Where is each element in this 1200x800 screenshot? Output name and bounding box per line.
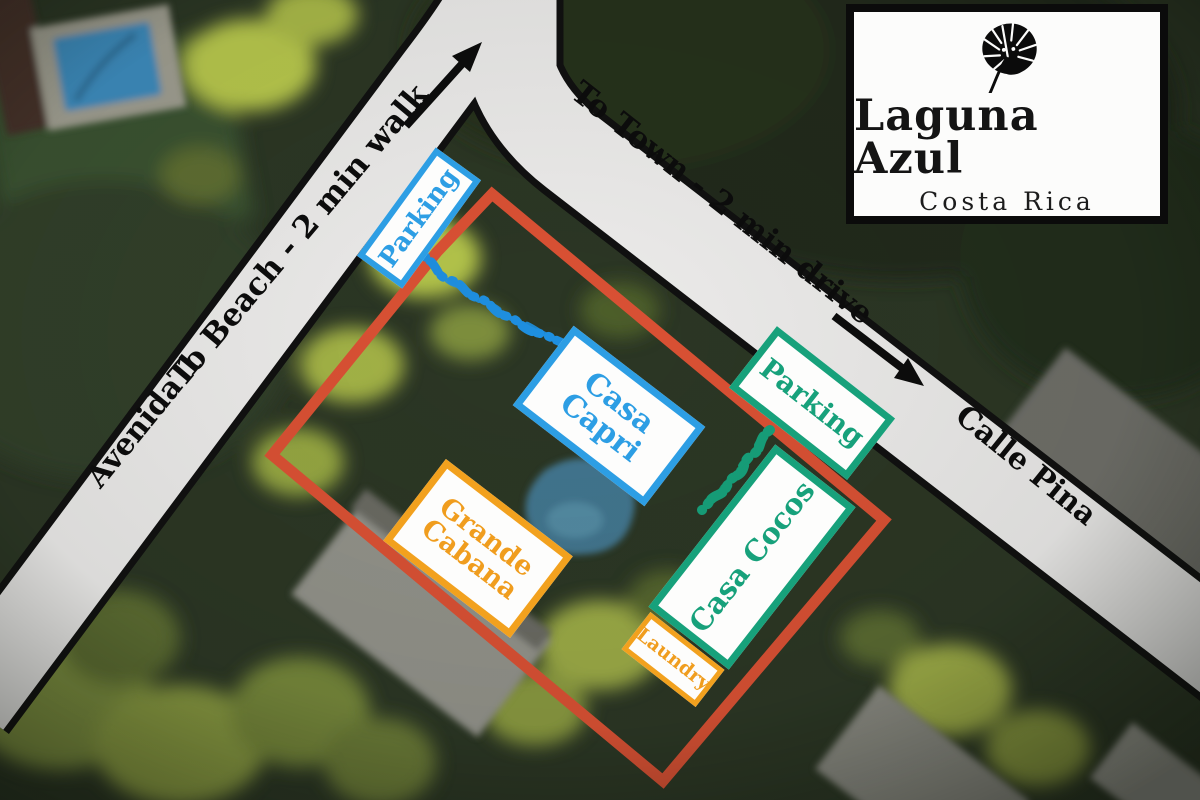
logo-subtitle: Costa Rica: [919, 187, 1095, 216]
logo-title: Laguna Azul: [854, 95, 1160, 181]
property-map-scene: Avenida 1 To Beach - 2 min walk To Town …: [0, 0, 1200, 800]
logo-card: Laguna Azul Costa Rica: [846, 4, 1168, 224]
monstera-leaf-icon: [955, 20, 1059, 93]
